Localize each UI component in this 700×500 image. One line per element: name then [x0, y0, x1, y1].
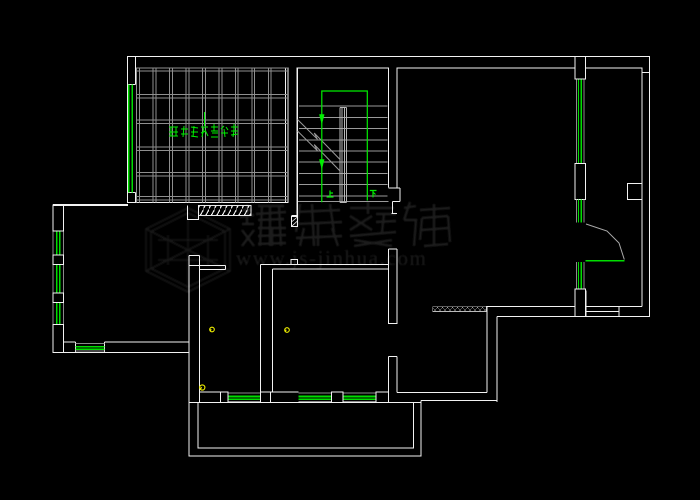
svg-text:www.js-jinhua.com: www.js-jinhua.com — [236, 246, 427, 270]
